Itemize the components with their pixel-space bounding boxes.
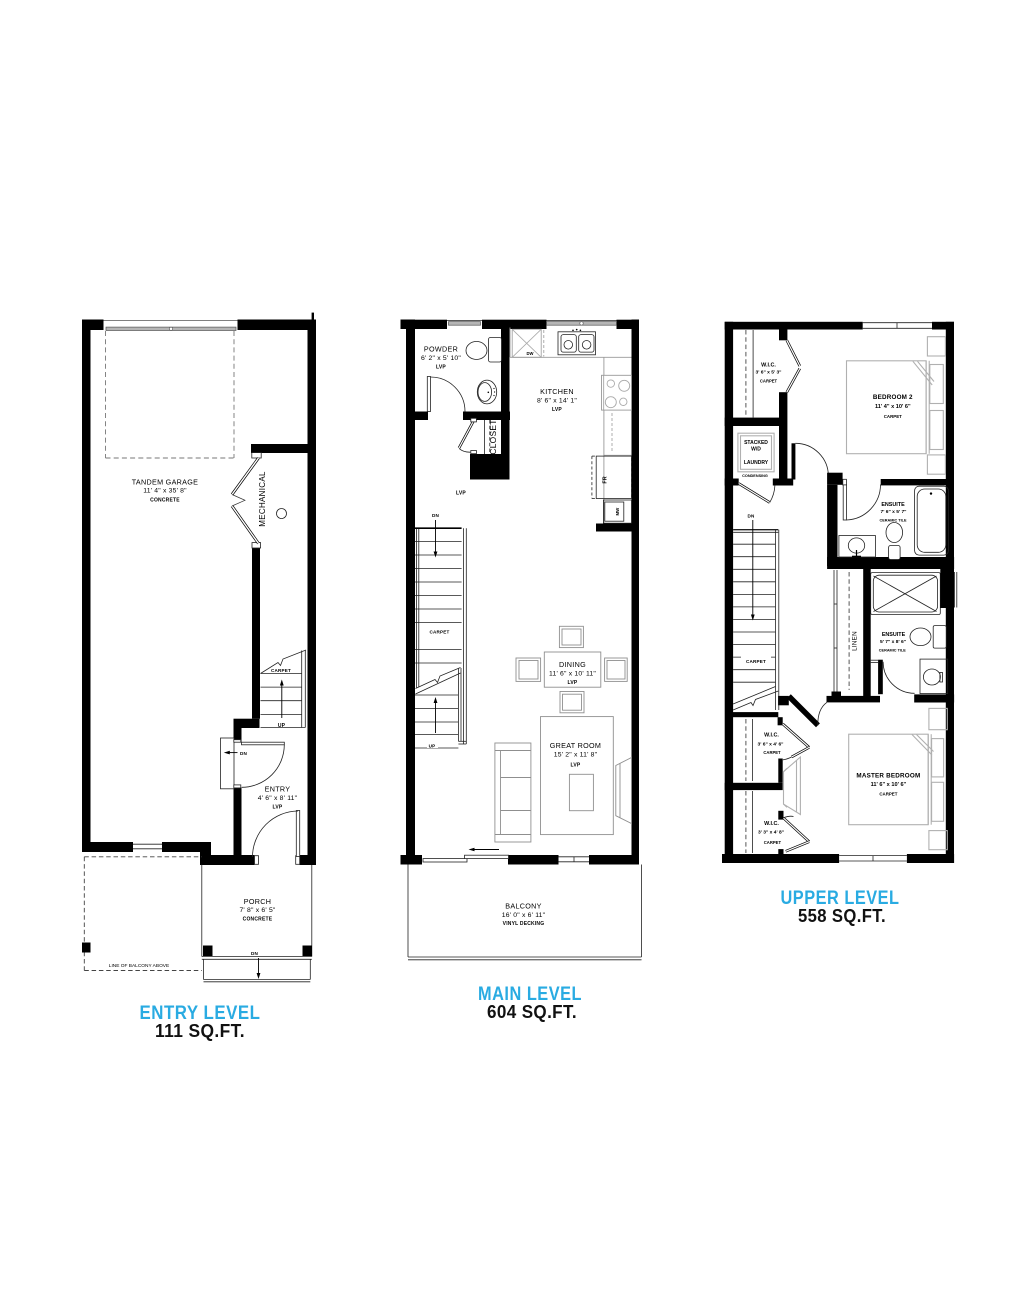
svg-text:11' 6" x 10' 6": 11' 6" x 10' 6" <box>871 782 907 788</box>
svg-text:LINEN: LINEN <box>852 631 859 651</box>
svg-text:15' 2" x 11' 8": 15' 2" x 11' 8" <box>554 751 598 758</box>
svg-text:POWDER: POWDER <box>424 345 458 354</box>
svg-text:BEDROOM 2: BEDROOM 2 <box>873 394 913 401</box>
svg-text:16' 0" x 6' 11": 16' 0" x 6' 11" <box>502 912 546 919</box>
svg-text:VINYL DECKING: VINYL DECKING <box>503 921 545 927</box>
svg-text:DINING: DINING <box>559 660 586 669</box>
svg-text:3' 6" x 5' 3": 3' 6" x 5' 3" <box>756 369 782 375</box>
svg-text:7' 8" x 6' 5": 7' 8" x 6' 5" <box>239 907 275 914</box>
svg-text:KITCHEN: KITCHEN <box>540 387 574 396</box>
svg-text:ENSUITE: ENSUITE <box>882 632 906 638</box>
svg-text:CARPET: CARPET <box>271 668 291 673</box>
svg-text:LVP: LVP <box>436 364 446 370</box>
svg-text:PORCH: PORCH <box>244 897 271 906</box>
svg-text:TANDEM GARAGE: TANDEM GARAGE <box>132 478 198 487</box>
svg-text:LVP: LVP <box>568 680 578 686</box>
svg-text:5' 7" x 8' 6": 5' 7" x 8' 6" <box>880 639 906 645</box>
svg-text:W.I.C.: W.I.C. <box>764 733 779 739</box>
svg-text:LAUNDRY: LAUNDRY <box>744 460 769 466</box>
svg-text:11' 4" x 10' 6": 11' 4" x 10' 6" <box>875 404 911 410</box>
svg-text:CONDENSING: CONDENSING <box>742 474 768 478</box>
svg-text:CONCRETE: CONCRETE <box>243 917 273 923</box>
svg-text:W.I.C.: W.I.C. <box>764 821 779 827</box>
svg-text:604 SQ.FT.: 604 SQ.FT. <box>487 1002 577 1022</box>
svg-text:LVP: LVP <box>571 763 581 769</box>
svg-text:ENSUITE: ENSUITE <box>881 502 905 508</box>
svg-text:11' 4" x 35' 8": 11' 4" x 35' 8" <box>143 488 187 495</box>
svg-text:11' 6" x 10' 11": 11' 6" x 10' 11" <box>549 670 596 677</box>
svg-text:6' 2" x 5' 10": 6' 2" x 5' 10" <box>421 355 461 362</box>
svg-text:111 SQ.FT.: 111 SQ.FT. <box>155 1021 245 1041</box>
svg-text:W/D: W/D <box>751 446 761 452</box>
svg-text:CARPET: CARPET <box>746 659 766 664</box>
svg-text:BALCONY: BALCONY <box>505 902 541 911</box>
svg-text:GREAT ROOM: GREAT ROOM <box>550 741 601 750</box>
svg-text:ENTRY: ENTRY <box>265 785 291 794</box>
svg-text:CARPET: CARPET <box>429 630 449 635</box>
svg-text:CARPET: CARPET <box>760 379 778 384</box>
svg-text:DN: DN <box>240 751 248 756</box>
svg-text:MASTER BEDROOM: MASTER BEDROOM <box>856 773 920 780</box>
svg-text:CARPET: CARPET <box>764 840 782 845</box>
svg-text:DN: DN <box>432 513 440 518</box>
svg-text:LVP: LVP <box>456 491 466 497</box>
svg-text:DW: DW <box>527 351 534 356</box>
svg-text:MW: MW <box>615 507 620 516</box>
svg-text:LINE OF BALCONY ABOVE: LINE OF BALCONY ABOVE <box>109 963 169 969</box>
svg-text:MECHANICAL: MECHANICAL <box>258 471 267 527</box>
svg-text:CARPET: CARPET <box>884 414 902 419</box>
svg-text:CONCRETE: CONCRETE <box>150 498 180 504</box>
svg-text:CARPET: CARPET <box>879 792 897 797</box>
svg-text:STACKED: STACKED <box>744 440 768 446</box>
svg-text:LVP: LVP <box>273 805 283 811</box>
svg-text:LVP: LVP <box>552 407 562 413</box>
svg-text:CERAMIC TILE: CERAMIC TILE <box>880 519 907 523</box>
svg-text:4' 6" x 8' 11": 4' 6" x 8' 11" <box>258 795 298 802</box>
svg-text:DN: DN <box>747 514 755 519</box>
svg-text:CLOSET: CLOSET <box>488 419 498 454</box>
svg-text:8' 6" x 14' 1": 8' 6" x 14' 1" <box>537 397 577 404</box>
svg-text:7' 6" x 5' 7": 7' 6" x 5' 7" <box>881 509 907 515</box>
svg-text:3' 3" x 4' 8": 3' 3" x 4' 8" <box>758 830 784 836</box>
svg-text:UP: UP <box>429 744 436 749</box>
svg-text:UP: UP <box>278 723 286 729</box>
svg-text:CERAMIC TILE: CERAMIC TILE <box>879 649 906 653</box>
svg-text:DN: DN <box>251 951 259 956</box>
svg-text:558 SQ.FT.: 558 SQ.FT. <box>798 906 886 926</box>
svg-text:3' 6" x 4' 6": 3' 6" x 4' 6" <box>758 741 784 747</box>
svg-text:CARPET: CARPET <box>763 750 781 755</box>
svg-text:W.I.C.: W.I.C. <box>761 363 776 369</box>
svg-text:FR: FR <box>603 476 609 483</box>
